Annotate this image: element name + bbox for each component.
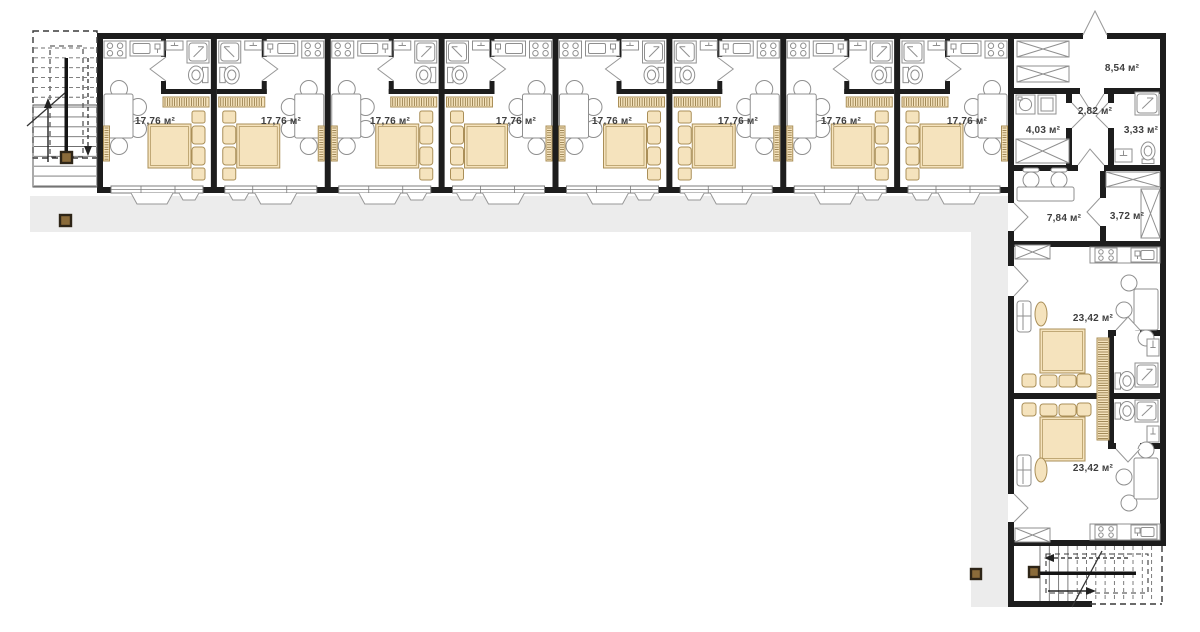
wall — [1008, 522, 1014, 607]
wall — [553, 33, 559, 187]
wall — [1108, 128, 1114, 165]
stair-break-line — [1072, 551, 1102, 607]
window-casement — [179, 193, 199, 200]
toilet-icon — [416, 66, 436, 84]
room-area-label: 17,76 м² — [370, 116, 411, 127]
column-marker — [971, 569, 981, 579]
shower-icon — [187, 41, 209, 63]
nightstand — [906, 168, 919, 180]
pillow — [1059, 404, 1076, 416]
pillow — [678, 147, 691, 165]
window — [111, 186, 203, 193]
pillow — [875, 126, 888, 144]
chair-icon — [1051, 172, 1067, 188]
nightstand — [223, 168, 236, 180]
toilet-icon — [1115, 402, 1135, 421]
kitchen-sink-icon — [947, 41, 981, 56]
toilet-icon — [675, 66, 695, 84]
wardrobe-strip — [104, 126, 110, 161]
window-casement — [483, 193, 525, 204]
pillow — [420, 147, 433, 165]
nightstand — [420, 111, 433, 123]
wardrobe-strip — [1002, 126, 1008, 161]
washing-machine-icon — [1016, 95, 1035, 114]
radiator — [447, 97, 493, 107]
room-area-label: 2,82 м² — [1078, 106, 1113, 117]
chair-icon — [984, 138, 1001, 155]
room-area-label: 8,54 м² — [1105, 63, 1140, 74]
window — [794, 186, 886, 193]
chair-back — [1023, 168, 1039, 172]
pillow — [420, 126, 433, 144]
chair-icon — [338, 138, 355, 155]
pillow — [906, 126, 919, 144]
chair-icon — [1116, 469, 1132, 485]
bathroom-door-swing-icon — [490, 57, 506, 81]
chair-back — [1051, 168, 1067, 172]
column-marker — [61, 152, 72, 163]
coffee-table — [1035, 458, 1047, 482]
pillow — [1022, 374, 1036, 387]
room-area-label: 17,76 м² — [261, 116, 302, 127]
pillow — [192, 147, 205, 165]
desk — [1017, 187, 1074, 201]
washbasin-icon — [622, 41, 639, 50]
wall — [1100, 171, 1106, 198]
bathroom-door-swing-icon — [262, 57, 278, 81]
nightstand — [451, 168, 464, 180]
washbasin-icon — [700, 41, 717, 50]
nightstand — [906, 111, 919, 123]
bathroom-door-swing-icon — [606, 57, 622, 81]
shower-icon — [674, 41, 696, 63]
down-arrow-icon — [84, 146, 92, 156]
wall — [389, 89, 439, 94]
wall — [1066, 94, 1072, 103]
wardrobe-strip — [559, 126, 565, 161]
column-marker — [1029, 567, 1039, 577]
pillow — [678, 126, 691, 144]
window-casement — [229, 193, 249, 200]
wall — [439, 33, 445, 187]
shower-icon — [1135, 92, 1159, 115]
kitchen-stove-icon — [332, 41, 354, 58]
pillow — [1059, 375, 1076, 387]
room-area-label: 17,76 м² — [135, 116, 176, 127]
shower-icon — [1135, 363, 1158, 387]
pillow — [1040, 375, 1057, 387]
kitchen-sink-icon — [130, 41, 164, 56]
bed — [1040, 417, 1085, 461]
window-casement — [255, 193, 297, 204]
window-casement — [407, 193, 427, 200]
kitchen-stove-icon — [302, 41, 324, 58]
wall — [780, 33, 786, 187]
radiator — [619, 97, 665, 107]
window — [339, 186, 431, 193]
door-swing-icon — [1014, 266, 1028, 296]
wall — [617, 89, 667, 94]
kitchen-sink-icon — [586, 41, 620, 56]
kitchen-sink-icon — [1131, 248, 1157, 262]
right-arrow-icon — [1086, 587, 1096, 595]
kitchen-stove-icon — [985, 41, 1007, 58]
radiator — [163, 97, 209, 107]
nightstand — [451, 111, 464, 123]
room-area-label: 3,72 м² — [1110, 211, 1145, 222]
nightstand — [192, 168, 205, 180]
bed — [1040, 329, 1085, 373]
wall — [1008, 231, 1014, 266]
washbasin-icon — [394, 41, 411, 50]
shower-icon — [415, 41, 437, 63]
room-area-label: 23,42 м² — [1073, 463, 1114, 474]
pillow — [1022, 403, 1036, 416]
toilet-icon — [1115, 372, 1135, 391]
staircase-lower — [1034, 546, 1162, 607]
room-area-label: 4,03 м² — [1026, 125, 1061, 136]
bathroom-door-swing-icon — [717, 57, 733, 81]
wall — [97, 33, 1083, 39]
window — [225, 186, 317, 193]
stove-icon — [1095, 248, 1117, 262]
kitchen-stove-icon — [757, 41, 779, 58]
radiator — [219, 97, 265, 107]
shower-icon — [447, 41, 469, 63]
wall — [1110, 393, 1166, 399]
door-swing-icon — [1078, 149, 1104, 165]
door-swing-icon — [1014, 203, 1028, 231]
wardrobe-strip — [331, 126, 337, 161]
wall — [1100, 226, 1106, 241]
chair-icon — [756, 138, 773, 155]
shower-icon — [219, 41, 241, 63]
column-marker — [60, 215, 71, 226]
wall — [1108, 330, 1116, 336]
floor-plan: 17,76 м²17,76 м²17,76 м²17,76 м²17,76 м²… — [0, 0, 1200, 632]
wall — [666, 33, 672, 187]
window-casement — [938, 193, 980, 204]
wall — [672, 89, 722, 94]
toilet-icon — [189, 66, 209, 84]
toilet-icon — [1141, 142, 1155, 164]
toilet-icon — [903, 66, 923, 84]
pillow — [192, 126, 205, 144]
pillow — [223, 147, 236, 165]
entry-door-swing-icon — [1083, 11, 1107, 35]
nightstand — [678, 168, 691, 180]
shower-icon — [1135, 400, 1158, 422]
room-area-label: 17,76 м² — [592, 116, 633, 127]
chair-icon — [111, 138, 128, 155]
window-casement — [587, 193, 629, 204]
wardrobe-xbox-icon — [1017, 66, 1069, 82]
window-casement — [912, 193, 932, 200]
pillow — [648, 126, 661, 144]
dining-table — [1134, 289, 1158, 330]
chair-icon — [566, 138, 583, 155]
stove-icon — [1095, 525, 1117, 539]
window-casement — [359, 193, 401, 204]
pillow — [451, 126, 464, 144]
chair-icon — [794, 138, 811, 155]
window — [567, 186, 659, 193]
wardrobe-xbox-icon — [1106, 172, 1160, 187]
wall — [894, 33, 900, 187]
pillow — [1040, 404, 1057, 416]
washbasin-icon — [1147, 426, 1159, 442]
stair-stringer — [1034, 572, 1136, 576]
washbasin-icon — [928, 41, 945, 50]
nightstand — [875, 111, 888, 123]
wall — [1104, 165, 1166, 171]
nightstand — [420, 168, 433, 180]
washbasin-icon — [245, 41, 262, 50]
shower-icon — [643, 41, 665, 63]
room-area-label: 17,76 м² — [496, 116, 537, 127]
chair-icon — [1023, 172, 1039, 188]
door-swing-icon — [1014, 494, 1028, 522]
office-furniture — [1017, 168, 1074, 201]
floor-plan-canvas: 17,76 м²17,76 м²17,76 м²17,76 м²17,76 м²… — [0, 0, 1200, 632]
bathroom-door-swing-icon — [378, 57, 394, 81]
washbasin-icon — [473, 41, 490, 50]
toilet-icon — [220, 66, 240, 84]
kitchen-sink-icon — [719, 41, 753, 56]
wardrobe-strip — [787, 126, 793, 161]
kitchen-sink-icon — [813, 41, 847, 56]
kitchen-stove-icon — [787, 41, 809, 58]
room-area-label: 23,42 м² — [1073, 313, 1114, 324]
door-swing-icon — [1087, 198, 1100, 226]
shower-icon — [870, 41, 892, 63]
room-area-label: 7,84 м² — [1047, 213, 1082, 224]
kitchen-sink-icon — [492, 41, 526, 56]
chair-icon — [1121, 275, 1137, 291]
toilet-icon — [872, 66, 892, 84]
radiator — [391, 97, 437, 107]
window-casement — [814, 193, 856, 204]
wall — [1107, 33, 1166, 39]
wardrobe-xbox-icon — [1016, 139, 1069, 163]
toilet-icon — [644, 66, 664, 84]
room-area-label: 3,33 м² — [1124, 125, 1159, 136]
nightstand — [223, 111, 236, 123]
sofa — [1017, 455, 1031, 486]
corridor-gallery — [30, 196, 1008, 607]
bathroom-door-swing-icon — [945, 57, 961, 81]
toilet-icon — [448, 66, 468, 84]
wall — [325, 33, 331, 187]
kitchen-stove-icon — [560, 41, 582, 58]
window — [908, 186, 1000, 193]
wall — [900, 89, 950, 94]
pillow — [648, 147, 661, 165]
pillow — [1077, 403, 1091, 416]
window-casement — [131, 193, 173, 204]
kitchen-sink-icon — [358, 41, 392, 56]
wall — [97, 33, 103, 193]
wardrobe-strip — [774, 126, 780, 161]
window-casement — [635, 193, 655, 200]
chair-icon — [1138, 442, 1154, 458]
washbasin-icon — [166, 41, 183, 50]
wall — [1014, 88, 1080, 94]
nightstand — [192, 111, 205, 123]
window — [680, 186, 772, 193]
washbasin-icon — [1147, 339, 1159, 356]
window-casement — [457, 193, 477, 200]
radiator — [1097, 338, 1109, 440]
nightstand — [875, 168, 888, 180]
window-casement — [684, 193, 704, 200]
shower-icon — [902, 41, 924, 63]
wall — [844, 89, 894, 94]
wardrobe-strip — [318, 126, 324, 161]
radiator — [674, 97, 720, 107]
sofa — [1017, 301, 1031, 332]
wall — [1108, 94, 1114, 103]
pillow — [223, 126, 236, 144]
nightstand — [648, 168, 661, 180]
pillow — [451, 147, 464, 165]
radiator — [902, 97, 948, 107]
wardrobe-xbox-icon — [1015, 528, 1050, 542]
pillow — [906, 147, 919, 165]
wall — [445, 89, 495, 94]
radiator — [846, 97, 892, 107]
kitchen-stove-icon — [530, 41, 552, 58]
coffee-table — [1035, 302, 1047, 326]
up-arrow-icon — [44, 98, 52, 108]
washbasin-icon — [1115, 149, 1132, 162]
washbasin-icon — [849, 41, 866, 50]
bathroom-door-swing-icon — [833, 57, 849, 81]
wall — [1008, 393, 1098, 399]
wall — [217, 89, 267, 94]
wall — [1008, 601, 1092, 607]
wall — [1160, 33, 1166, 546]
wall — [161, 89, 211, 94]
room-area-label: 17,76 м² — [718, 116, 759, 127]
bathroom-door-swing-icon — [150, 57, 166, 81]
room-area-label: 17,76 м² — [821, 116, 862, 127]
chair-icon — [300, 138, 317, 155]
chair-icon — [1116, 302, 1132, 318]
chair-icon — [528, 138, 545, 155]
wall — [1008, 33, 1014, 203]
nightstand — [678, 111, 691, 123]
wall — [211, 33, 217, 187]
dining-table — [1134, 458, 1158, 499]
wardrobe-strip — [546, 126, 552, 161]
pillow — [875, 147, 888, 165]
window — [453, 186, 545, 193]
window-casement — [710, 193, 752, 204]
stair-stringer — [65, 58, 69, 153]
window-casement — [862, 193, 882, 200]
pillow — [1077, 374, 1091, 387]
wardrobe-xbox-icon — [1017, 41, 1069, 57]
kitchen-sink-icon — [264, 41, 298, 56]
room-area-label: 17,76 м² — [947, 116, 988, 127]
wardrobe-xbox-icon — [1015, 245, 1050, 259]
nightstand — [648, 111, 661, 123]
wall — [1108, 443, 1116, 449]
kitchen-stove-icon — [104, 41, 126, 58]
kitchen-sink-icon — [1131, 525, 1157, 539]
